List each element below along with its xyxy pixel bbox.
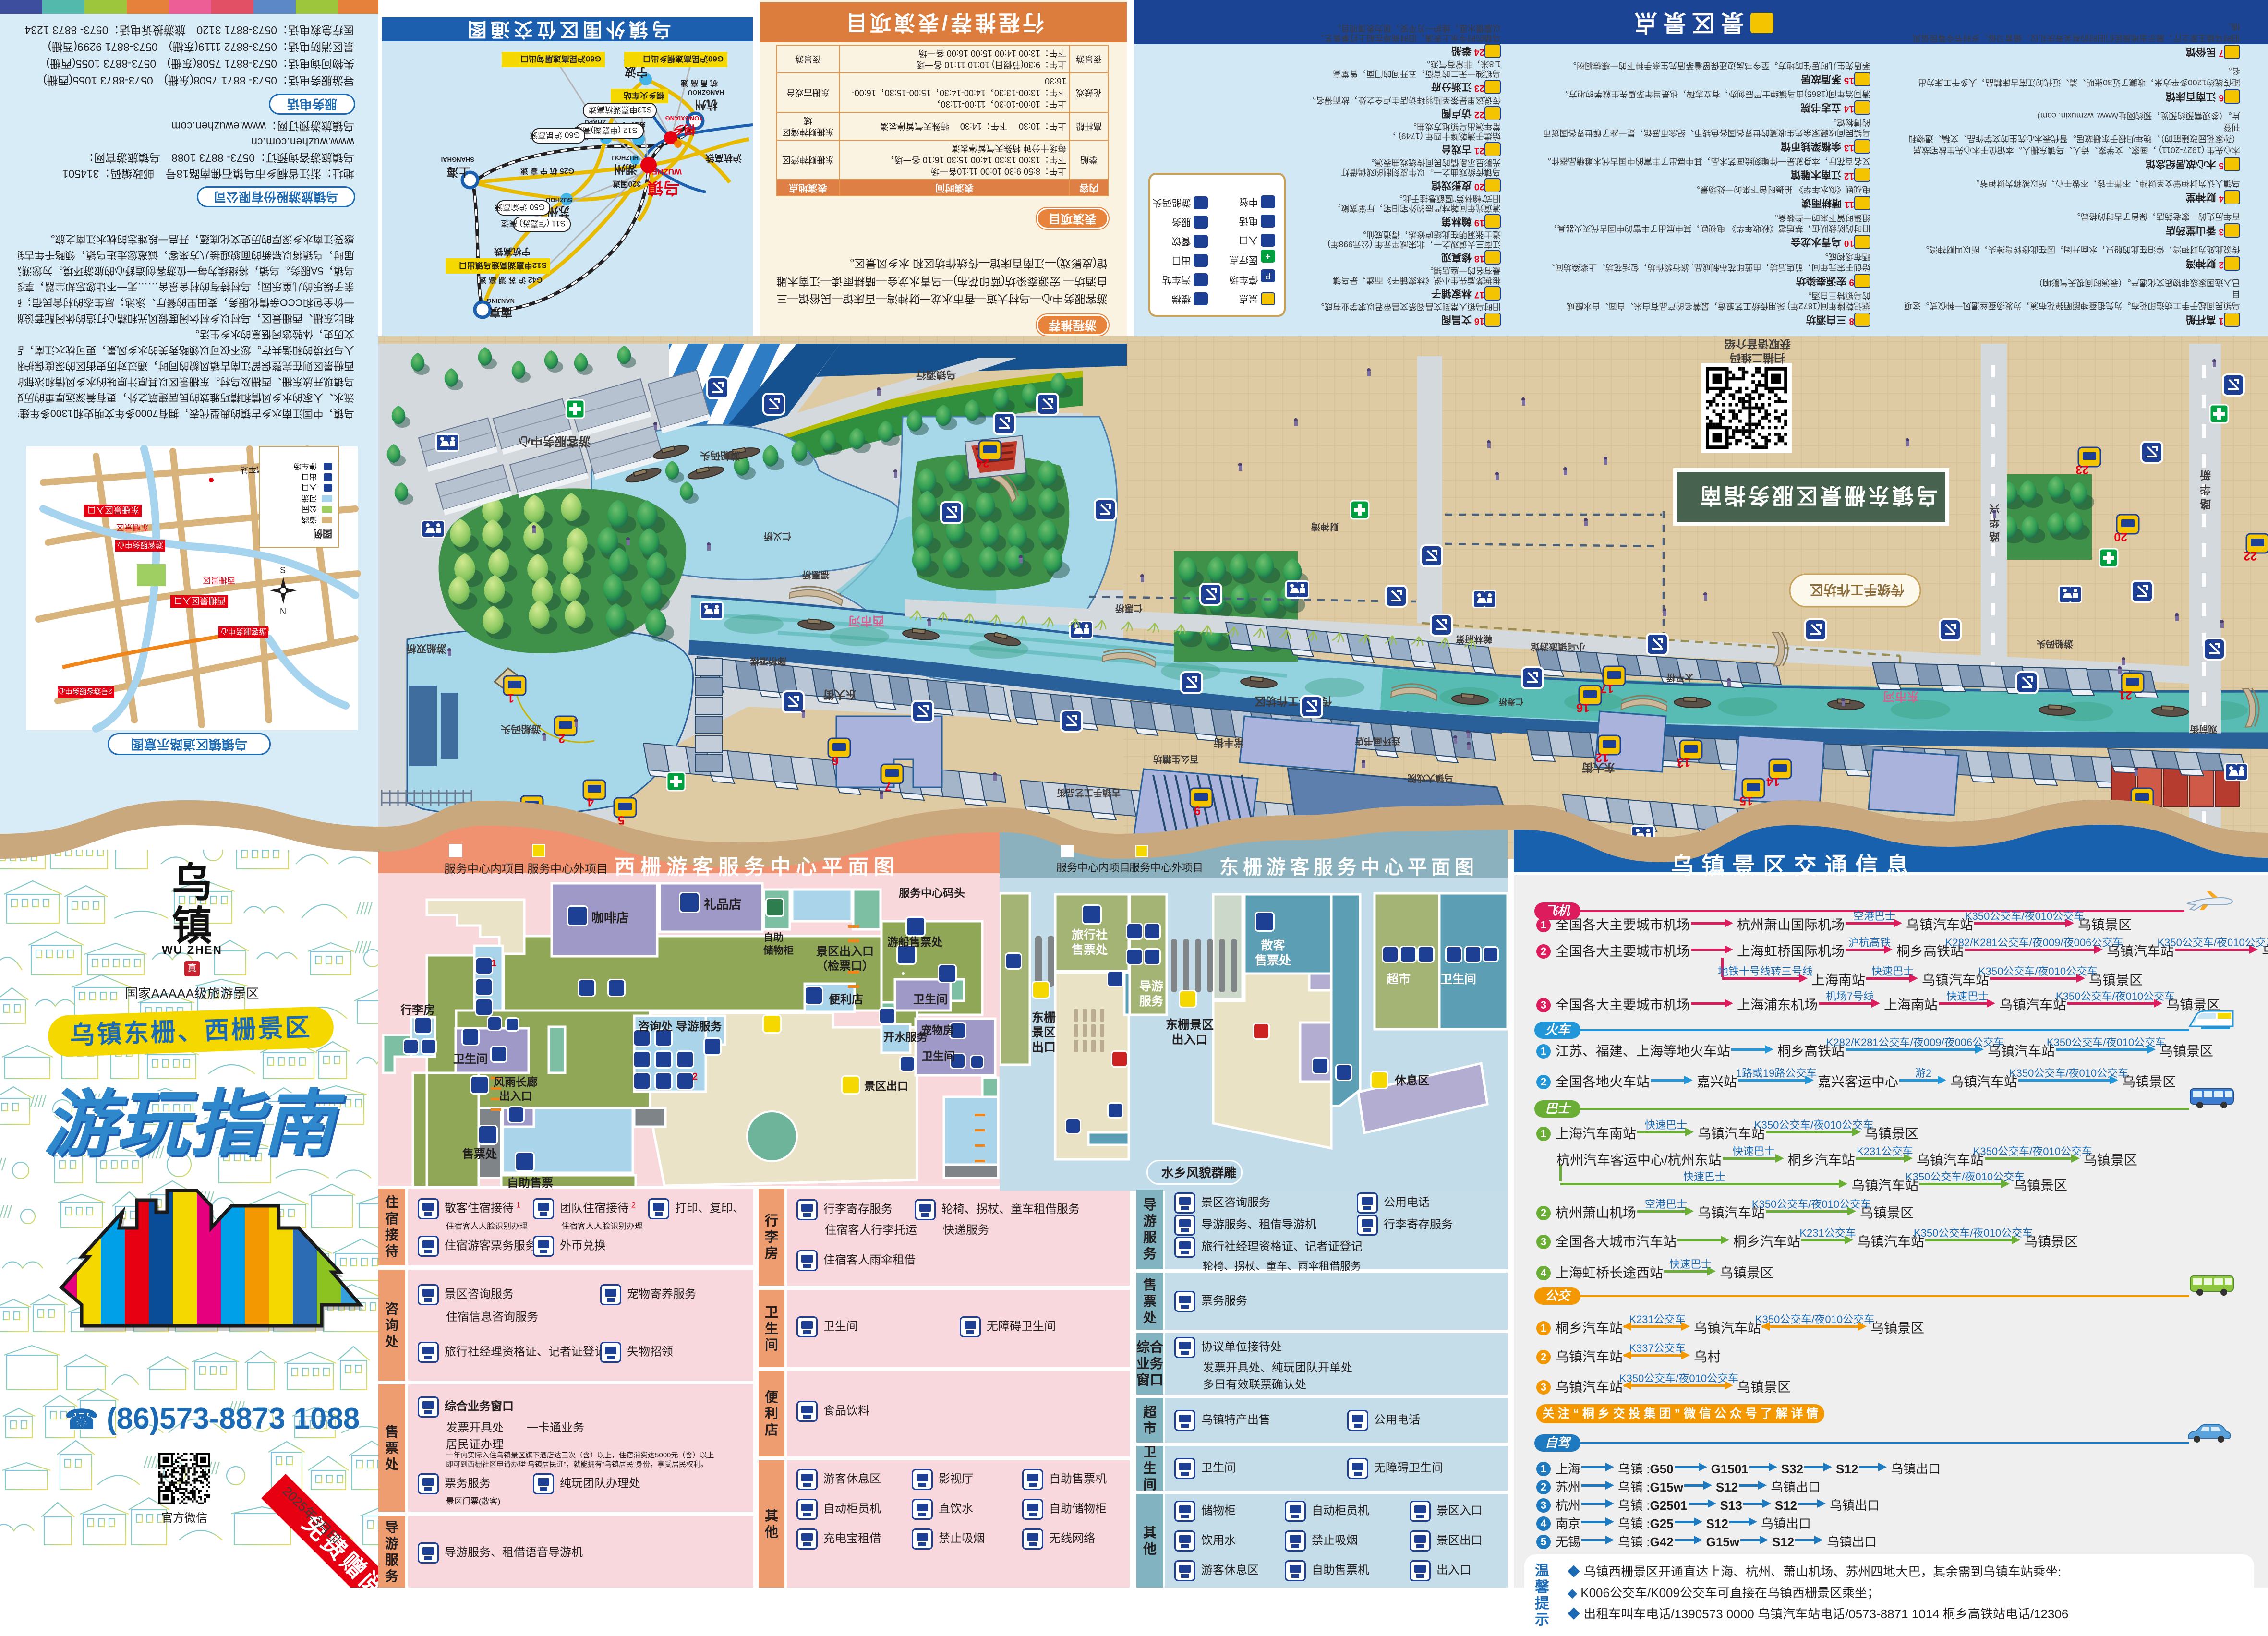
svg-text:仁寿桥: 仁寿桥 — [1498, 697, 1523, 707]
svg-text:12: 12 — [1595, 751, 1609, 764]
svg-text:停车场: 停车场 — [294, 462, 317, 470]
svg-text:21: 21 — [2119, 688, 2132, 702]
svg-text:入口: 入口 — [302, 483, 317, 491]
svg-text:获取语音介绍: 获取语音介绍 — [1725, 338, 1791, 350]
svg-text:仁义桥: 仁义桥 — [763, 531, 791, 542]
svg-text:S: S — [280, 565, 286, 575]
svg-text:东市河: 东市河 — [1883, 689, 1919, 703]
svg-text:百么生糟坊: 百么生糟坊 — [1153, 754, 1199, 765]
svg-text:游船码头: 游船码头 — [700, 450, 740, 461]
svg-text:小乌镇旅游馆: 小乌镇旅游馆 — [1531, 641, 1585, 652]
svg-text:东栅景区入口: 东栅景区入口 — [87, 505, 139, 515]
svg-text:路: 路 — [2199, 498, 2211, 510]
svg-text:扫描二维码: 扫描二维码 — [1730, 352, 1785, 364]
svg-text:华: 华 — [2200, 483, 2211, 496]
svg-text:财神湾: 财神湾 — [1311, 521, 1339, 532]
svg-text:出口: 出口 — [302, 472, 317, 481]
svg-text:G50 沪渝高速: G50 沪渝高速 — [495, 203, 545, 212]
svg-text:G60 沪昆高速: G60 沪昆高速 — [530, 131, 580, 140]
svg-text:HUZHOU: HUZHOU — [612, 154, 639, 161]
svg-text:西栅景区: 西栅景区 — [203, 576, 235, 585]
svg-text:TONGXIANG: TONGXIANG — [665, 115, 703, 122]
svg-text:乌镇酒行: 乌镇酒行 — [916, 369, 956, 381]
svg-text:G60沪昆高速桐乡出口: G60沪昆高速桐乡出口 — [643, 54, 724, 64]
svg-text:2号游客服务中心: 2号游客服务中心 — [58, 687, 112, 695]
svg-text:传统手工作坊区: 传统手工作坊区 — [1810, 582, 1905, 598]
svg-text:乌镇: 乌镇 — [647, 179, 680, 197]
svg-text:西市河: 西市河 — [848, 614, 884, 628]
svg-text:杭州: 杭州 — [695, 98, 718, 111]
svg-text:图例: 图例 — [313, 528, 332, 540]
svg-text:仁惠桥: 仁惠桥 — [1115, 603, 1143, 614]
svg-text:新: 新 — [2200, 469, 2211, 481]
svg-text:游船码头: 游船码头 — [2037, 638, 2073, 650]
svg-text:N: N — [280, 607, 286, 616]
svg-text:G42 沪 苏 湖 高 速: G42 沪 苏 湖 高 速 — [479, 276, 543, 285]
svg-text:游船双桥: 游船双桥 — [406, 643, 446, 654]
svg-text:东栅景区: 东栅景区 — [116, 523, 149, 532]
svg-text:16: 16 — [1576, 701, 1590, 714]
svg-text:G60沪昆高速屠甸出口: G60沪昆高速屠甸出口 — [520, 54, 601, 64]
svg-text:连环画书店: 连环画书店 — [1355, 736, 1400, 747]
svg-text:宁波: 宁波 — [624, 65, 648, 79]
svg-text:G25 杭 宁 高 速: G25 杭 宁 高 速 — [520, 167, 574, 176]
svg-text:游客服务中心: 游客服务中心 — [117, 541, 163, 549]
svg-text:湖州: 湖州 — [614, 162, 637, 175]
svg-text:20: 20 — [2114, 530, 2127, 543]
svg-text:S11 (乍嘉苏) 高速: S11 (乍嘉苏) 高速 — [501, 219, 566, 228]
svg-text:宁杭高铁: 宁杭高铁 — [494, 246, 531, 257]
svg-text:桐乡: 桐乡 — [673, 123, 696, 136]
svg-text:HANGZHOU: HANGZHOU — [688, 89, 724, 96]
svg-text:东大街: 东大街 — [823, 688, 857, 701]
svg-text:廊桥酒楼: 廊桥酒楼 — [750, 656, 786, 667]
svg-text:23: 23 — [2075, 463, 2089, 476]
svg-text:2: 2 — [558, 732, 565, 745]
svg-text:SUZHOU: SUZHOU — [546, 196, 572, 204]
svg-text:西栅景区入口: 西栅景区入口 — [174, 596, 226, 605]
svg-text:S13申嘉湖杭高速: S13申嘉湖杭高速 — [589, 105, 652, 114]
svg-text:道路: 道路 — [302, 515, 317, 524]
svg-text:游客服务中心: 游客服务中心 — [519, 434, 591, 448]
svg-text:河流: 河流 — [302, 494, 317, 503]
svg-text:公园: 公园 — [302, 505, 317, 513]
svg-text:路: 路 — [1989, 530, 2000, 542]
svg-text:S12申嘉湖高速乌镇出口: S12申嘉湖高速乌镇出口 — [459, 261, 547, 270]
svg-text:WUZHEN: WUZHEN — [646, 167, 682, 176]
svg-text:24: 24 — [976, 456, 989, 469]
svg-text:NANJING: NANJING — [486, 297, 515, 304]
svg-text:苏州: 苏州 — [547, 204, 570, 217]
svg-text:320国道: 320国道 — [613, 180, 641, 189]
svg-text:常丰街: 常丰街 — [1214, 737, 1244, 748]
svg-text:福惠桥: 福惠桥 — [802, 569, 830, 580]
svg-text:观前街: 观前街 — [2190, 724, 2217, 735]
svg-text:13: 13 — [1677, 756, 1690, 769]
svg-text:华: 华 — [1989, 517, 2000, 529]
svg-text:南京: 南京 — [489, 305, 512, 319]
svg-text:6: 6 — [832, 754, 839, 767]
svg-text:17: 17 — [1600, 682, 1614, 695]
svg-text:乌镇东栅景区服务指南: 乌镇东栅景区服务指南 — [1698, 483, 1938, 508]
svg-text:杭 甬 高 速: 杭 甬 高 速 — [681, 79, 718, 88]
svg-text:桐乡火车站: 桐乡火车站 — [624, 91, 664, 100]
svg-text:上海: 上海 — [447, 165, 470, 179]
svg-text:游客服务中心: 游客服务中心 — [220, 627, 266, 636]
svg-text:SHANGHAI: SHANGHAI — [441, 156, 474, 163]
svg-text:太平桥: 太平桥 — [1666, 672, 1694, 683]
svg-text:游船码头: 游船码头 — [501, 723, 541, 735]
svg-text:1: 1 — [507, 691, 514, 705]
svg-text:22: 22 — [2244, 549, 2257, 563]
svg-text:沪杭高铁: 沪杭高铁 — [705, 153, 742, 164]
